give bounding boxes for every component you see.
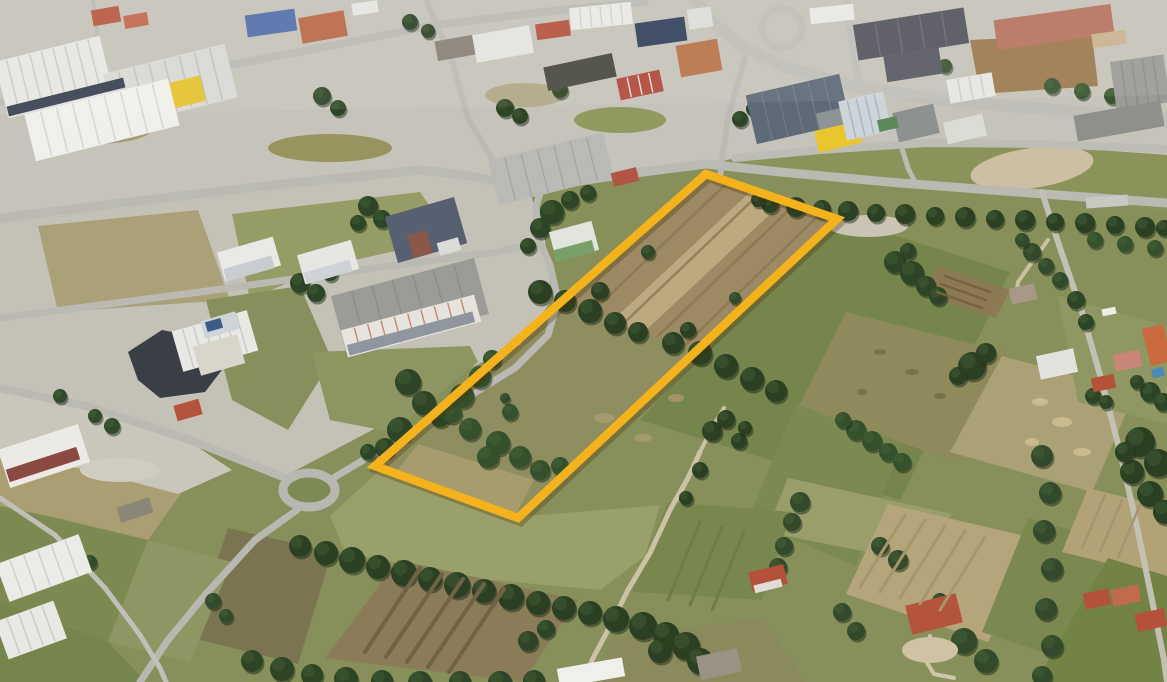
aerial-3d-map-view[interactable] — [0, 0, 1167, 682]
speckle-a — [1032, 398, 1048, 406]
roundabout — [283, 473, 335, 507]
speckle-c — [1025, 438, 1039, 446]
speckle-b — [1052, 417, 1072, 427]
grass-patch-top-b — [268, 134, 392, 162]
farmhouse-gravel-yard — [902, 637, 958, 663]
speckle-d — [1073, 448, 1091, 456]
parcel-dry-spot-a — [594, 413, 614, 423]
dry-field-top-left — [38, 210, 230, 312]
parcel-dry-spot-b — [634, 434, 652, 442]
pasture-spot-d — [857, 389, 867, 395]
pasture-spot-c — [934, 393, 946, 399]
grass-patch-top-c — [574, 107, 666, 133]
satellite-imagery-canvas[interactable] — [0, 0, 1167, 682]
pasture-spot-b — [905, 369, 919, 375]
parcel-dry-spot-c — [668, 394, 684, 402]
atmospheric-haze — [0, 0, 1167, 115]
dirt-patch-bottom-left — [80, 458, 160, 482]
pasture-spot-a — [874, 349, 886, 355]
